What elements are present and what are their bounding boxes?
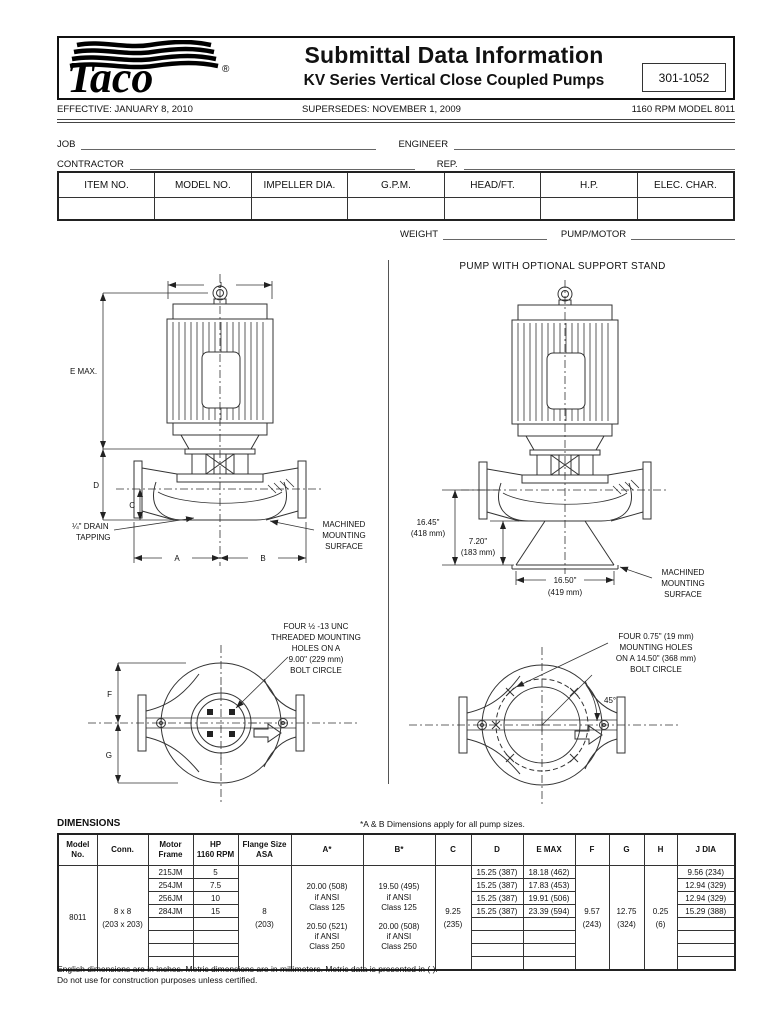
discharge-flange [298,461,306,518]
pump-motor-blank [631,227,735,240]
rpm-model: 1160 RPM MODEL 8011 [632,104,735,115]
bolt-hole-mark [570,754,578,762]
dimensions-title: DIMENSIONS [57,818,120,829]
dim-1650mm-label: (419 mm) [548,588,583,597]
suction-flange [134,461,142,518]
drain-note-line1: ¼" DRAIN [72,522,109,531]
col-motor-frame: Motor Frame [148,834,193,866]
flange-value: 8(203) [238,866,291,971]
registered-mark: ® [222,64,230,75]
d-dimension-value: 15.25 (387) [471,866,523,879]
pump-bolt-circle-drawing: 45° FOUR 0.75" (19 mm) MOUNTING HOLES ON… [400,623,730,813]
header-box: Taco ® Submittal Data Information KV Ser… [57,36,735,100]
drain-note-line2: TAPPING [76,533,111,542]
col-b: B* [363,834,435,866]
bolt-note-line3: HOLES ON A [292,644,341,653]
pump-plan-view-drawing: F G FOUR ½ -13 UNC THREADED MOUNTING HOL… [58,615,388,815]
document-number: 301-1052 [659,71,710,85]
footnote-units: English dimensions are in inches. Metric… [57,964,735,975]
bolt-note-line3: ON A 14.50" (368 mm) [616,654,697,663]
col-h: H [644,834,677,866]
col-d: D [471,834,523,866]
col-elec-char: ELEC. CHAR. [637,172,734,198]
c-dimension-value: 9.25(235) [435,866,471,971]
contractor-rep-row: CONTRACTOR REP. [57,157,735,170]
contractor-label: CONTRACTOR [57,159,124,170]
pump-front-view-drawing: J E MAX. D C A B ¼" DRAIN TAPPING MACHIN… [58,268,378,598]
mount-note-line2: MOUNTING [661,579,705,588]
selection-table: ITEM NO. MODEL NO. IMPELLER DIA. G.P.M. … [57,171,735,221]
submittal-data-sheet: Taco ® Submittal Data Information KV Ser… [0,0,770,1024]
job-blank [81,137,376,150]
shaft-hatch [268,479,294,493]
dim-d-label: D [93,481,99,490]
engineer-label: ENGINEER [398,139,448,150]
rep-blank [464,157,735,170]
footnotes: English dimensions are in inches. Metric… [57,964,735,986]
dim-720mm-label: (183 mm) [461,548,496,557]
dim-subrow: 8011 8 x 8(203 x 203) 215JM 5 8(203) 20.… [58,866,735,879]
bolt-hole-mark [570,688,578,696]
effective-date: EFFECTIVE: JANUARY 8, 2010 [57,104,193,115]
col-jdia: J DIA [677,834,735,866]
supersedes-date: SUPERSEDES: NOVEMBER 1, 2009 [302,104,461,115]
col-f: F [575,834,609,866]
bolt-note-line1: FOUR ½ -13 UNC [284,622,349,631]
model-no-value: 8011 [58,866,97,971]
support-stand [512,521,618,569]
job-engineer-row: JOB ENGINEER [57,137,735,150]
document-number-box: 301-1052 [642,63,726,92]
col-g: G [609,834,644,866]
col-hp: H.P. [541,172,638,198]
mount-note-line1: MACHINED [662,568,705,577]
job-label: JOB [57,139,75,150]
pump-support-stand-drawing: 16.45" (418 mm) 7.20" (183 mm) 16.50" (4… [400,278,730,623]
col-head-ft: HEAD/FT. [444,172,541,198]
dim-720-label: 7.20" [469,537,488,546]
header-rule [57,119,735,123]
dim-c-label: C [129,501,135,510]
jdia-dimension-value: 9.56 (234) [677,866,735,879]
header-titles: Submittal Data Information KV Series Ver… [244,38,664,90]
mount-note-line1: MACHINED [323,520,366,529]
ab-dimensions-note: *A & B Dimensions apply for all pump siz… [360,819,525,829]
page-subtitle: KV Series Vertical Close Coupled Pumps [244,72,664,90]
support-stand-title: PUMP WITH OPTIONAL SUPPORT STAND [390,261,735,272]
mount-note-line3: SURFACE [325,542,363,551]
bolt-note-line2: MOUNTING HOLES [620,643,693,652]
page-title: Submittal Data Information [244,42,664,69]
logo-wordmark: Taco [67,53,153,98]
col-a: A* [291,834,363,866]
pump-motor-label: PUMP/MOTOR [561,229,626,240]
bolt-note-line5: BOLT CIRCLE [290,666,342,675]
dim-j-label: J [218,281,222,290]
contractor-blank [130,157,415,170]
hp-value: 5 [193,866,238,879]
col-flange-asa: Flange Size ASA [238,834,291,866]
dimensions-table: Model No. Conn. Motor Frame HP 1160 RPM … [57,833,736,971]
dim-1645mm-label: (418 mm) [411,529,446,538]
col-model: Model No. [58,834,97,866]
dim-a-label: A [174,554,180,563]
dim-g-label: G [106,751,112,760]
drawing-divider [388,260,389,784]
col-model-no: MODEL NO. [155,172,252,198]
bolt-note-line4: 9.00" (229 mm) [289,655,344,664]
motor-frame-value: 215JM [148,866,193,879]
col-emax: E MAX [523,834,575,866]
dim-1645-label: 16.45" [417,518,440,527]
dimensions-header-row: Model No. Conn. Motor Frame HP 1160 RPM … [58,834,735,866]
bolt-note-line1: FOUR 0.75" (19 mm) [618,632,694,641]
emax-dimension-value: 18.18 (462) [523,866,575,879]
selection-empty-row [58,198,734,221]
weight-blank [443,227,547,240]
flow-arrow-icon [254,724,281,742]
weight-label: WEIGHT [400,229,438,240]
rep-label: REP. [437,159,458,170]
angle-label: 45° [604,696,616,705]
bolt-hole-mark [506,688,514,696]
g-dimension-value: 12.75(324) [609,866,644,971]
taco-logo: Taco ® [65,40,240,98]
col-conn: Conn. [97,834,148,866]
col-c: C [435,834,471,866]
col-impeller-dia: IMPELLER DIA. [251,172,348,198]
mount-note-line3: SURFACE [664,590,702,599]
b-dimension-value: 19.50 (495) if ANSI Class 12520.00 (508)… [363,866,435,971]
engineer-blank [454,137,735,150]
a-dimension-value: 20.00 (508) if ANSI Class 12520.50 (521)… [291,866,363,971]
bolt-hole-mark [506,754,514,762]
dim-1650-label: 16.50" [554,576,577,585]
f-dimension-value: 9.57(243) [575,866,609,971]
col-item-no: ITEM NO. [58,172,155,198]
mount-note-line2: MOUNTING [322,531,366,540]
h-dimension-value: 0.25(6) [644,866,677,971]
col-gpm: G.P.M. [348,172,445,198]
bolt-note-line2: THREADED MOUNTING [271,633,361,642]
weight-row: WEIGHT PUMP/MOTOR [400,227,735,240]
conn-value: 8 x 8(203 x 203) [97,866,148,971]
motor-nameplate [202,352,240,408]
meta-row: EFFECTIVE: JANUARY 8, 2010 SUPERSEDES: N… [57,104,735,115]
footnote-certified: Do not use for construction purposes unl… [57,975,735,986]
dim-b-label: B [260,554,265,563]
dim-emax-label: E MAX. [70,367,97,376]
col-hp-rpm: HP 1160 RPM [193,834,238,866]
bolt-note-line4: BOLT CIRCLE [630,665,682,674]
dim-f-label: F [107,690,112,699]
